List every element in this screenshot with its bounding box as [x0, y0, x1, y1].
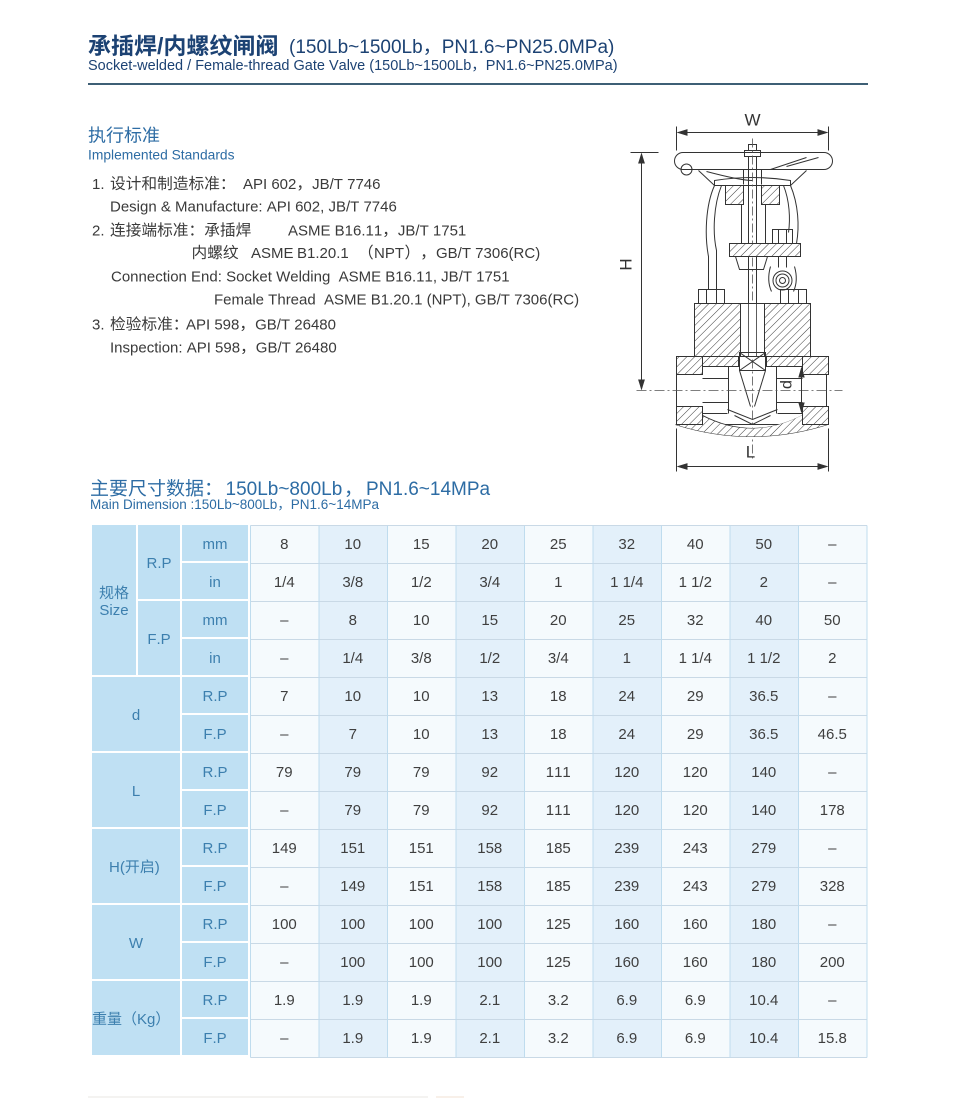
svg-text:3.: 3. — [92, 317, 105, 334]
svg-text:H(: H( — [109, 859, 125, 876]
svg-text:120: 120 — [614, 802, 639, 819]
svg-text:Size: Size — [99, 602, 128, 619]
svg-text:120: 120 — [683, 802, 708, 819]
svg-text:PN1.6~PN25.0MPa): PN1.6~PN25.0MPa) — [486, 58, 618, 74]
svg-text:13: 13 — [481, 688, 498, 705]
svg-text:1/4: 1/4 — [342, 650, 363, 667]
svg-text:2.: 2. — [92, 223, 105, 240]
svg-text:GB/T 7306(RC): GB/T 7306(RC) — [436, 245, 540, 262]
svg-text:Female Thread ASME B1.20.1 (N: Female Thread ASME B1.20.1 (NPT), GB/T 7… — [214, 292, 579, 309]
svg-text:d: d — [779, 380, 796, 389]
svg-text:–: – — [280, 726, 289, 743]
svg-text:20: 20 — [550, 612, 567, 629]
svg-text:8: 8 — [280, 536, 288, 553]
svg-text:1 1/2: 1 1/2 — [679, 574, 712, 591]
svg-text:149: 149 — [272, 840, 297, 857]
svg-text:–: – — [828, 688, 837, 705]
svg-text:111: 111 — [546, 802, 571, 819]
svg-text:46.5: 46.5 — [818, 726, 847, 743]
svg-text:–: – — [280, 954, 289, 971]
svg-text:111: 111 — [546, 764, 571, 781]
svg-text:24: 24 — [618, 726, 635, 743]
svg-text:ASME: ASME — [251, 245, 294, 262]
svg-text:6.9: 6.9 — [616, 1030, 637, 1047]
svg-text:178: 178 — [820, 802, 845, 819]
svg-text:–: – — [828, 764, 837, 781]
svg-text:160: 160 — [614, 954, 639, 971]
svg-text:120: 120 — [683, 764, 708, 781]
svg-text:1.: 1. — [92, 176, 105, 193]
svg-text:3.2: 3.2 — [548, 992, 569, 1009]
svg-text:125: 125 — [546, 916, 571, 933]
svg-text:mm: mm — [203, 612, 228, 629]
svg-text:100: 100 — [477, 954, 502, 971]
svg-text:6.9: 6.9 — [616, 992, 637, 1009]
svg-text:Kg: Kg — [137, 1011, 155, 1028]
svg-text:1.9: 1.9 — [411, 1030, 432, 1047]
svg-text:Inspection: API 598: Inspection: API 598 — [110, 340, 240, 357]
svg-text:–: – — [828, 574, 837, 591]
svg-text:15: 15 — [481, 612, 498, 629]
svg-text:25: 25 — [550, 536, 567, 553]
svg-text:15.8: 15.8 — [818, 1030, 847, 1047]
svg-text:–: – — [828, 536, 837, 553]
svg-text:79: 79 — [413, 764, 430, 781]
svg-text:3/8: 3/8 — [342, 574, 363, 591]
svg-text:160: 160 — [614, 916, 639, 933]
svg-text:10: 10 — [413, 612, 430, 629]
svg-text:149: 149 — [340, 878, 365, 895]
svg-text:–: – — [280, 612, 289, 629]
svg-text:R.P: R.P — [202, 764, 227, 781]
svg-text:2: 2 — [760, 574, 768, 591]
svg-text:R.P: R.P — [146, 555, 171, 572]
svg-text:L: L — [132, 783, 140, 800]
svg-text:10.4: 10.4 — [749, 992, 778, 1009]
svg-text:–: – — [828, 840, 837, 857]
svg-text:Design & Manufacture: API 602,: Design & Manufacture: API 602, JB/T 7746 — [110, 199, 397, 216]
svg-text:3/4: 3/4 — [548, 650, 569, 667]
svg-text:1/2: 1/2 — [411, 574, 432, 591]
svg-text:140: 140 — [751, 802, 776, 819]
svg-text:32: 32 — [687, 612, 704, 629]
svg-text:): ) — [155, 859, 160, 876]
svg-text:–: – — [280, 802, 289, 819]
svg-text:50: 50 — [824, 612, 841, 629]
svg-text:185: 185 — [546, 840, 571, 857]
svg-text:2.1: 2.1 — [479, 992, 500, 1009]
svg-text:79: 79 — [344, 802, 361, 819]
svg-text:140: 140 — [751, 764, 776, 781]
svg-text:F.P: F.P — [203, 802, 226, 819]
svg-text:JB/T 1751: JB/T 1751 — [398, 223, 466, 240]
svg-text:200: 200 — [820, 954, 845, 971]
svg-text:1 1/4: 1 1/4 — [679, 650, 712, 667]
svg-text:R.P: R.P — [202, 916, 227, 933]
svg-text:10: 10 — [344, 688, 361, 705]
svg-text:10: 10 — [344, 536, 361, 553]
svg-text:R.P: R.P — [202, 840, 227, 857]
svg-text:F.P: F.P — [203, 726, 226, 743]
svg-text:50: 50 — [755, 536, 772, 553]
svg-text:29: 29 — [687, 726, 704, 743]
svg-text:15: 15 — [413, 536, 430, 553]
svg-text:151: 151 — [409, 840, 434, 857]
svg-text:W: W — [129, 935, 144, 952]
svg-text:8: 8 — [349, 612, 357, 629]
svg-text:10.4: 10.4 — [749, 1030, 778, 1047]
svg-text:3/8: 3/8 — [411, 650, 432, 667]
svg-text:L: L — [746, 443, 755, 462]
svg-text:180: 180 — [751, 916, 776, 933]
svg-text:180: 180 — [751, 954, 776, 971]
svg-text:79: 79 — [276, 764, 293, 781]
svg-text:d: d — [132, 707, 140, 724]
svg-text:18: 18 — [550, 726, 567, 743]
svg-text:API 598: API 598 — [186, 317, 239, 334]
svg-text:GB/T 26480: GB/T 26480 — [255, 317, 336, 334]
svg-text:25: 25 — [618, 612, 635, 629]
svg-text:29: 29 — [687, 688, 704, 705]
svg-text:279: 279 — [751, 840, 776, 857]
svg-text:–: – — [280, 878, 289, 895]
svg-text:Socket-welded / Female-thread: Socket-welded / Female-thread Gate Valve… — [88, 58, 471, 74]
svg-text:Connection End: Socket Welding: Connection End: Socket Welding ASME B16.… — [111, 269, 510, 286]
svg-text:158: 158 — [477, 840, 502, 857]
svg-text:Implemented Standards: Implemented Standards — [88, 148, 235, 163]
svg-text:H: H — [617, 258, 636, 270]
svg-text:125: 125 — [546, 954, 571, 971]
svg-text:100: 100 — [409, 954, 434, 971]
svg-text:40: 40 — [755, 612, 772, 629]
svg-text:F.P: F.P — [203, 878, 226, 895]
svg-text:1.9: 1.9 — [274, 992, 295, 1009]
svg-text:mm: mm — [203, 536, 228, 553]
svg-text:92: 92 — [481, 802, 498, 819]
svg-text:/: / — [157, 33, 164, 59]
svg-text:PN1.6~14MPa: PN1.6~14MPa — [291, 497, 380, 512]
svg-text:3.2: 3.2 — [548, 1030, 569, 1047]
svg-text:79: 79 — [413, 802, 430, 819]
svg-text:10: 10 — [413, 688, 430, 705]
svg-text:100: 100 — [409, 916, 434, 933]
svg-text:100: 100 — [477, 916, 502, 933]
svg-text:(150Lb~1500Lb: (150Lb~1500Lb — [289, 37, 423, 58]
svg-text:158: 158 — [477, 878, 502, 895]
svg-text:160: 160 — [683, 954, 708, 971]
svg-text:F.P: F.P — [147, 631, 170, 648]
svg-text:1/4: 1/4 — [274, 574, 295, 591]
svg-text:2.1: 2.1 — [479, 1030, 500, 1047]
svg-text:1 1/4: 1 1/4 — [610, 574, 643, 591]
svg-text:243: 243 — [683, 840, 708, 857]
svg-text:1.9: 1.9 — [342, 992, 363, 1009]
svg-text:79: 79 — [344, 764, 361, 781]
svg-text:24: 24 — [618, 688, 635, 705]
svg-text:B1.20.1: B1.20.1 — [297, 245, 349, 262]
svg-text:GB/T 26480: GB/T 26480 — [256, 340, 337, 357]
svg-text:W: W — [744, 111, 760, 130]
svg-text:Main Dimension :150Lb~800Lb: Main Dimension :150Lb~800Lb — [90, 497, 277, 512]
svg-text:1: 1 — [623, 650, 631, 667]
svg-text:in: in — [209, 574, 221, 591]
svg-text:PN1.6~PN25.0MPa): PN1.6~PN25.0MPa) — [442, 37, 615, 58]
svg-text:185: 185 — [546, 878, 571, 895]
svg-text:100: 100 — [272, 916, 297, 933]
svg-text:2: 2 — [828, 650, 836, 667]
svg-text:1.9: 1.9 — [411, 992, 432, 1009]
svg-text:328: 328 — [820, 878, 845, 895]
svg-text:32: 32 — [618, 536, 635, 553]
svg-text:18: 18 — [550, 688, 567, 705]
svg-text:151: 151 — [340, 840, 365, 857]
svg-text:279: 279 — [751, 878, 776, 895]
svg-text:–: – — [280, 1030, 289, 1047]
svg-text:R.P: R.P — [202, 992, 227, 1009]
svg-text:20: 20 — [481, 536, 498, 553]
svg-text:–: – — [828, 916, 837, 933]
svg-text:40: 40 — [687, 536, 704, 553]
svg-text:JB/T 7746: JB/T 7746 — [312, 176, 380, 193]
svg-text:R.P: R.P — [202, 688, 227, 705]
svg-text:F.P: F.P — [203, 954, 226, 971]
svg-text:3/4: 3/4 — [479, 574, 500, 591]
svg-text:151: 151 — [409, 878, 434, 895]
svg-text:NPT: NPT — [374, 245, 404, 262]
svg-text:239: 239 — [614, 840, 639, 857]
svg-text:36.5: 36.5 — [749, 726, 778, 743]
svg-text:F.P: F.P — [203, 1030, 226, 1047]
svg-text:243: 243 — [683, 878, 708, 895]
svg-text:92: 92 — [481, 764, 498, 781]
svg-text:–: – — [828, 992, 837, 1009]
svg-text:API 602: API 602 — [243, 176, 296, 193]
svg-text:PN1.6~14MPa: PN1.6~14MPa — [366, 479, 491, 500]
svg-text:in: in — [209, 650, 221, 667]
svg-text:1.9: 1.9 — [342, 1030, 363, 1047]
svg-text:1: 1 — [554, 574, 562, 591]
svg-text:100: 100 — [340, 916, 365, 933]
svg-text:1 1/2: 1 1/2 — [747, 650, 780, 667]
svg-text:6.9: 6.9 — [685, 1030, 706, 1047]
svg-text:36.5: 36.5 — [749, 688, 778, 705]
svg-text:10: 10 — [413, 726, 430, 743]
svg-text:120: 120 — [614, 764, 639, 781]
svg-text:7: 7 — [280, 688, 288, 705]
svg-text:100: 100 — [340, 954, 365, 971]
svg-text:6.9: 6.9 — [685, 992, 706, 1009]
svg-text:160: 160 — [683, 916, 708, 933]
svg-text:–: – — [280, 650, 289, 667]
svg-text:7: 7 — [349, 726, 357, 743]
svg-text:ASME B16.11: ASME B16.11 — [288, 223, 382, 240]
svg-text:1/2: 1/2 — [479, 650, 500, 667]
svg-text:13: 13 — [481, 726, 498, 743]
svg-text:239: 239 — [614, 878, 639, 895]
